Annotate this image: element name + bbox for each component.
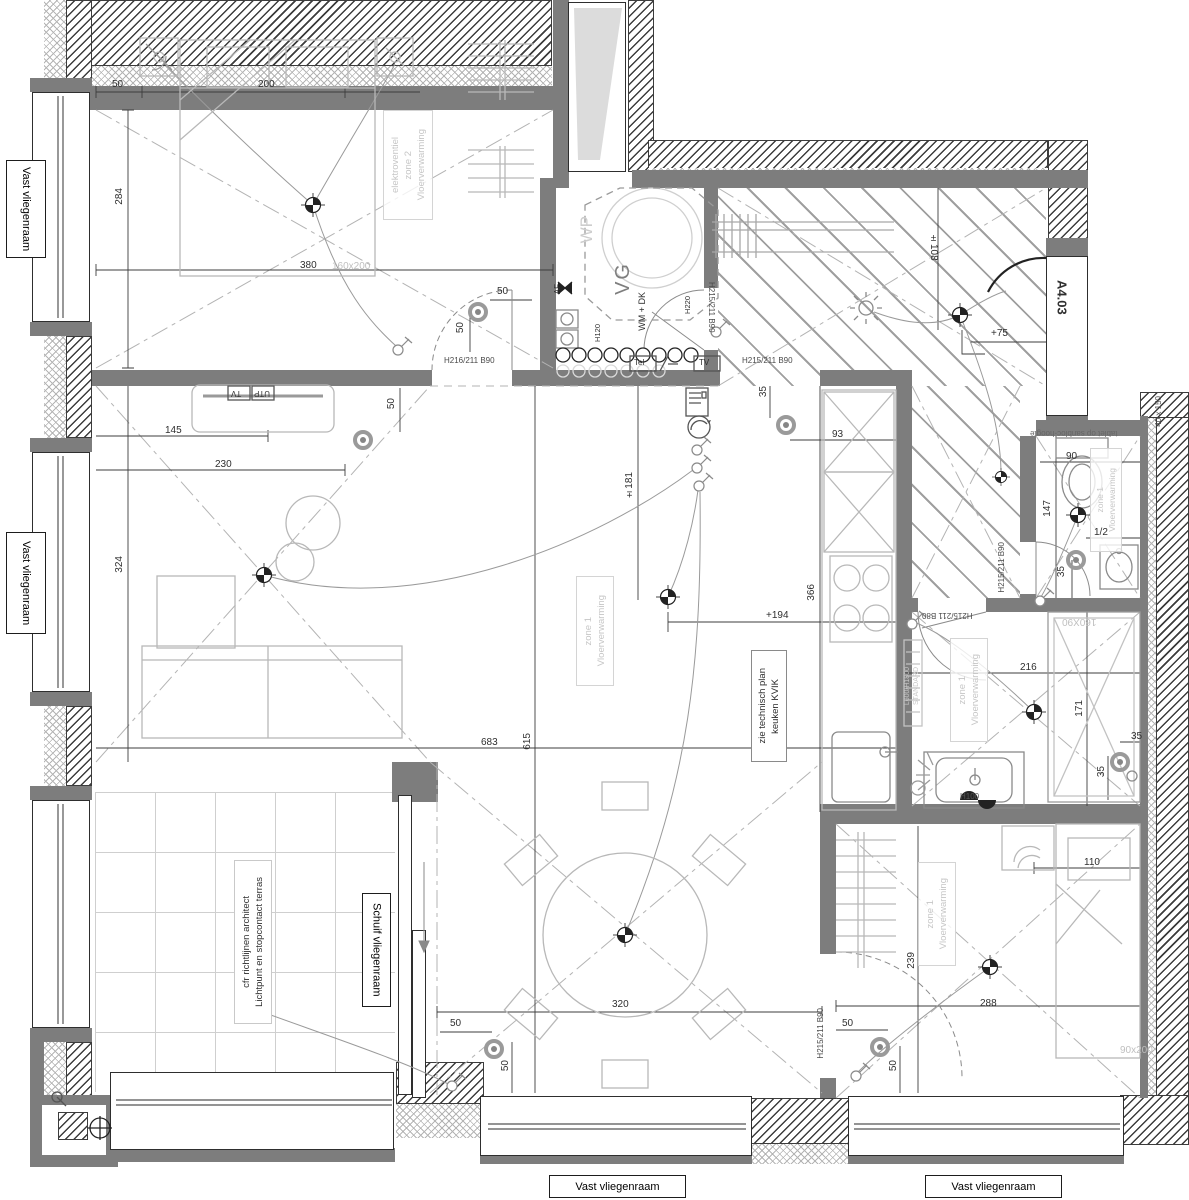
tag-h100: H100 bbox=[960, 793, 979, 802]
dim: 320 bbox=[612, 999, 629, 1010]
note-line: zone 1 bbox=[1095, 487, 1105, 513]
window-label-text: Schuif vliegenraam bbox=[371, 903, 383, 997]
note-line: Vloerverwarming bbox=[416, 129, 427, 200]
tag-h220: H220 bbox=[684, 296, 692, 314]
shower-size: 160X90 bbox=[1062, 616, 1096, 627]
note-line: zone 1 bbox=[583, 617, 594, 646]
dim: 615 bbox=[522, 733, 533, 750]
room-tag-vg: VG bbox=[612, 262, 634, 295]
tag-utp: UTP bbox=[254, 388, 270, 397]
note-line: cfr richtlijnen architect bbox=[241, 896, 252, 988]
note-zone1-living: zone 1 Vloerverwarming bbox=[576, 576, 614, 686]
dim: 147 bbox=[1042, 500, 1053, 517]
tag-tv-wall: TV bbox=[231, 388, 241, 397]
note-line: STANDARD bbox=[913, 667, 920, 705]
dim: 230 bbox=[215, 459, 232, 470]
window-label-sliding: Schuif vliegenraam bbox=[362, 893, 391, 1007]
door-code-bedroom1: H216/211 B90 bbox=[444, 357, 495, 366]
note-line: Vloerverwarming bbox=[938, 878, 949, 949]
niche-size-label: 40 x 150 bbox=[1155, 396, 1164, 427]
sockets bbox=[355, 304, 1128, 1057]
dim: 35 bbox=[1131, 731, 1142, 742]
door-code-hall: H215/211 B90 bbox=[742, 357, 793, 366]
bed2-size: 90x200 bbox=[1120, 1045, 1153, 1056]
dim: 366 bbox=[806, 584, 817, 601]
dim: 171 bbox=[1074, 700, 1085, 717]
window-label-left-top: Vast vliegenraam bbox=[6, 160, 46, 258]
dim: 216 bbox=[1020, 662, 1037, 673]
note-line: zone 1 bbox=[957, 676, 968, 705]
note-line: zone 2 bbox=[403, 151, 414, 180]
window-label-text: Vast vliegenraam bbox=[951, 1181, 1035, 1193]
dim: 93 bbox=[832, 429, 843, 440]
note-line: Vloerverwarming bbox=[970, 654, 981, 725]
note-line: elektroventiel bbox=[390, 137, 401, 193]
door-code-bathroom: H215/211 B80 bbox=[922, 610, 973, 619]
tag-h120: H120 bbox=[594, 324, 602, 342]
door-code-bedroom2: H215/211 B90 bbox=[817, 1008, 826, 1059]
dim: +75 bbox=[991, 328, 1008, 339]
dim: 200 bbox=[258, 79, 275, 90]
window-glazing bbox=[58, 8, 1120, 1129]
dim: ±181 bbox=[624, 472, 635, 500]
note-zone2: elektroventiel zone 2 Vloerverwarming bbox=[383, 110, 433, 220]
dim: 50 bbox=[497, 286, 508, 297]
dim: +194 bbox=[766, 610, 789, 621]
dim: 50 bbox=[450, 1018, 461, 1029]
dim: 284 bbox=[114, 188, 125, 205]
tag-wp: WP bbox=[578, 216, 597, 243]
dim: 1/2 bbox=[1094, 527, 1108, 538]
window-label-text: Vast vliegenraam bbox=[20, 167, 32, 251]
floor-plan-canvas: Vast vliegenraam Vast vliegenraam Vast v… bbox=[0, 0, 1189, 1200]
door-code-vg: H215/211 B90 bbox=[706, 282, 715, 333]
tag-wm-dk: WM + DK bbox=[638, 292, 648, 331]
dim: 35 bbox=[1096, 766, 1107, 777]
note-zone1-bath: zone 1 Vloerverwarming bbox=[950, 638, 988, 742]
window-label-bottom-2: Vast vliegenraam bbox=[925, 1175, 1062, 1198]
dim: 50 bbox=[842, 1018, 853, 1029]
dim: 324 bbox=[114, 556, 125, 573]
dim: 50 bbox=[888, 1060, 899, 1071]
dim: 50 bbox=[386, 398, 397, 409]
dim: 288 bbox=[980, 998, 997, 1009]
window-label-text: Vast vliegenraam bbox=[575, 1181, 659, 1193]
wc-shelf-note: tablet op sanbloc-hoogte bbox=[1030, 428, 1118, 437]
note-kitchen-kvik: zie technisch plan keuken KVIK bbox=[751, 650, 787, 762]
light-points bbox=[252, 193, 1090, 979]
tag-af: AF bbox=[554, 284, 563, 294]
note-line: zie technisch plan bbox=[757, 668, 768, 744]
dim: 50 bbox=[455, 322, 466, 333]
dim: 110 bbox=[1084, 857, 1100, 868]
note-zone1-bedroom2: zone 1 Vloerverwarming bbox=[918, 862, 956, 966]
dim: 50 bbox=[112, 79, 123, 90]
bed1-size: 160x200 bbox=[332, 261, 370, 272]
window-label-left-mid: Vast vliegenraam bbox=[6, 532, 46, 634]
dim: 35 bbox=[1056, 566, 1067, 577]
note-line: keuken KVIK bbox=[770, 679, 781, 734]
dim: 380 bbox=[300, 260, 317, 271]
dim: ±108 bbox=[928, 233, 939, 261]
note-line: L600/H1800 bbox=[904, 667, 911, 705]
dim: 145 bbox=[165, 425, 182, 436]
dim: 239 bbox=[906, 952, 917, 969]
window-label-text: Vast vliegenraam bbox=[20, 541, 32, 625]
note-line: zone 1 bbox=[925, 900, 936, 929]
note-line: Vloerverwarming bbox=[596, 595, 607, 666]
dim: 90 bbox=[1066, 451, 1077, 462]
tag-radiator: L600/H1800 STANDARD bbox=[901, 642, 923, 730]
tag-tel: Tel bbox=[634, 359, 644, 368]
note-line: Vloerverwarming bbox=[1107, 468, 1117, 532]
entry-door-code: A4.03 bbox=[1054, 280, 1068, 315]
tag-tv: TV bbox=[699, 359, 709, 368]
dim: 35 bbox=[758, 386, 769, 397]
note-line: Lichtpunt en stopcontact terras bbox=[254, 877, 265, 1007]
door-code-wc: H215/211 B90 bbox=[998, 542, 1007, 593]
dim: 50 bbox=[500, 1060, 511, 1071]
note-terrace: cfr richtlijnen architect Lichtpunt en s… bbox=[234, 860, 272, 1024]
window-label-bottom-1: Vast vliegenraam bbox=[549, 1175, 686, 1198]
dim: 683 bbox=[481, 737, 498, 748]
